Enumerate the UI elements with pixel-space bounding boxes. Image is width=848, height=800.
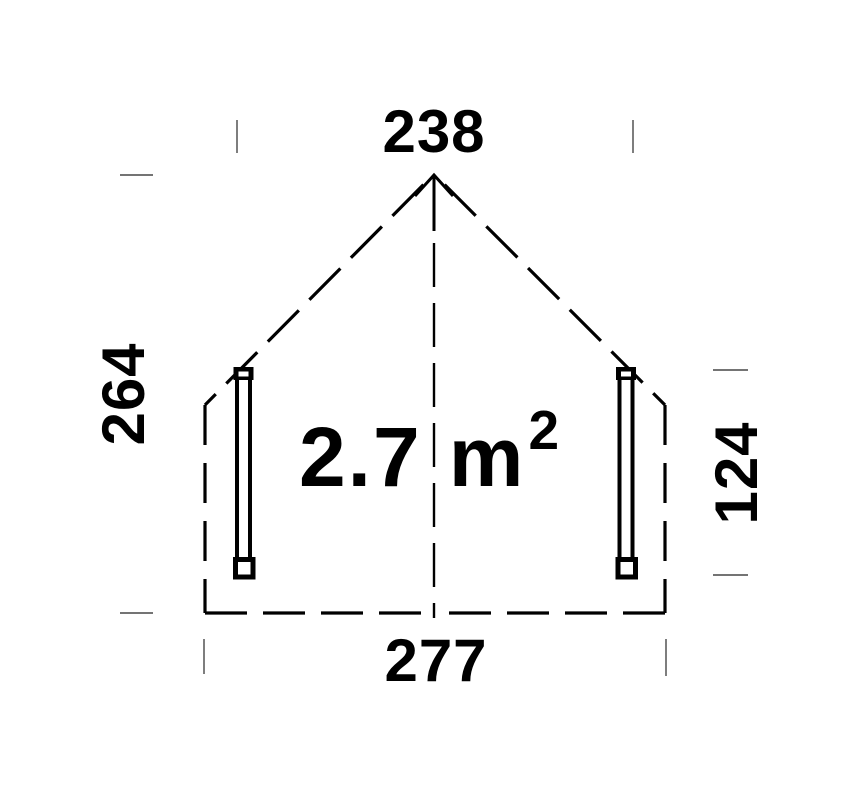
area-value: 2.7	[299, 415, 422, 499]
right-post-bottom-cap	[618, 560, 636, 578]
left-post-top-cap-slot	[239, 372, 249, 377]
area-label: 2.7 m 2	[299, 415, 561, 499]
dimension-label-bottom-width: 277	[384, 631, 487, 691]
left-post-bottom-cap	[236, 560, 254, 578]
area-unit: m 2	[449, 415, 561, 499]
right-post	[616, 367, 636, 577]
area-unit-exponent: 2	[528, 403, 561, 458]
left-post-body	[237, 375, 250, 559]
right-post-top-cap-slot	[621, 372, 631, 377]
area-unit-letter: m	[449, 415, 526, 499]
ridge-arrow	[415, 175, 453, 231]
dimension-label-right-height: 124	[707, 421, 767, 524]
dimension-label-top-width: 238	[382, 102, 485, 162]
shed-floorplan-diagram: 238 264 124 277 2.7 m 2	[0, 0, 848, 800]
left-post	[234, 367, 254, 577]
dimension-label-left-height: 264	[94, 342, 154, 445]
right-post-body	[620, 375, 633, 559]
